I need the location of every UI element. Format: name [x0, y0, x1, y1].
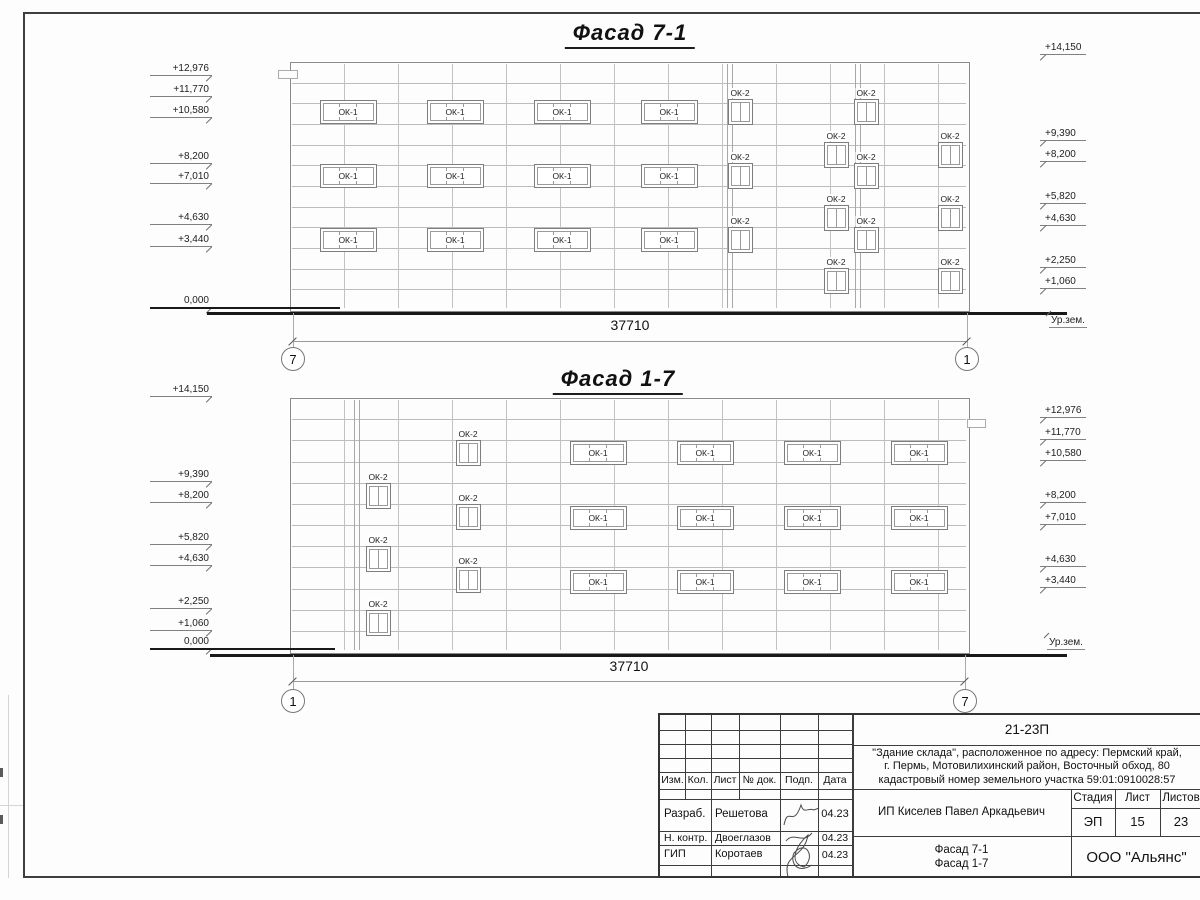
- tb-role-ncontrol: Н. контр.: [660, 831, 711, 845]
- axis-leader-line: [293, 655, 294, 689]
- window-type-label: ОК-1: [801, 577, 822, 587]
- window-ok2: ОК-2: [366, 483, 391, 509]
- tb-date-gip: 04.23: [818, 845, 852, 865]
- window-type-label: ОК-1: [694, 513, 715, 523]
- panel-joint-line: [292, 504, 966, 505]
- signature-strokes: [778, 795, 822, 878]
- window-pane: [379, 487, 387, 505]
- window-ok1: ОК-1: [891, 570, 948, 594]
- elevation-value: +5,820: [178, 532, 209, 543]
- tb-date-developer: 04.23: [818, 799, 852, 831]
- panel-joint-line: [292, 525, 966, 526]
- tb-subject-line2: Фасад 1-7: [935, 858, 989, 872]
- window-ok2: ОК-2: [456, 504, 481, 530]
- window-type-label: ОК-1: [694, 448, 715, 458]
- elevation-mark: +14,150: [150, 383, 212, 397]
- column-grid-line: [506, 400, 507, 650]
- stair-tower-line: [354, 400, 360, 650]
- window-pane: [607, 510, 623, 526]
- column-grid-line: [560, 400, 561, 650]
- window-sash: [369, 486, 388, 506]
- elevation-mark: +8,200: [150, 489, 212, 503]
- panel-joint-line: [292, 419, 966, 420]
- window-type-label: ОК-1: [908, 577, 929, 587]
- dimension-line: [293, 681, 965, 682]
- window-pane: [370, 550, 379, 568]
- elevation-mark: +7,010: [1040, 511, 1086, 525]
- panel-joint-line: [292, 546, 966, 547]
- axis-bubble: 7: [953, 689, 977, 713]
- window-pane: [460, 508, 469, 526]
- window-sash: [459, 507, 478, 527]
- elevation-tick: [206, 608, 212, 614]
- ground-line: [150, 648, 335, 650]
- tb-col-izm: Изм.: [660, 772, 685, 789]
- building-outline: [290, 398, 970, 654]
- window-pane: [821, 510, 837, 526]
- tb-doc-number: 21-23П: [852, 715, 1200, 745]
- column-grid-line: [668, 400, 669, 650]
- tb-name-ncontrol: Двоеглазов: [711, 831, 780, 845]
- window-type-label: ОК-2: [367, 599, 388, 609]
- window-type-label: ОК-2: [457, 493, 478, 503]
- window-type-label: ОК-2: [367, 472, 388, 482]
- elevation-value: +14,150: [173, 384, 209, 395]
- axis-leader-line: [965, 655, 966, 689]
- window-ok1: ОК-1: [677, 506, 734, 530]
- tb-col-podp: Подп.: [780, 772, 818, 789]
- elevation-tick: [1040, 460, 1046, 466]
- dimension-label: 37710: [606, 658, 653, 674]
- elevation-value: +7,010: [1045, 512, 1076, 523]
- window-sash: [459, 443, 478, 463]
- elevation-mark: +8,200: [1040, 489, 1086, 503]
- tb-sheets-value: 23: [1160, 808, 1200, 836]
- elevation-tick: [1040, 439, 1046, 445]
- elevation-value: +10,580: [1045, 448, 1081, 459]
- window-pane: [607, 574, 623, 590]
- panel-joint-line: [292, 631, 966, 632]
- window-pane: [379, 550, 387, 568]
- window-type-label: ОК-1: [908, 513, 929, 523]
- window-pane: [370, 487, 379, 505]
- title-block-line: [660, 758, 852, 759]
- window-ok1: ОК-1: [570, 506, 627, 530]
- elevation-mark: +9,390: [150, 468, 212, 482]
- elevation-value: +1,060: [178, 618, 209, 629]
- tb-sheets-label: Листов: [1160, 789, 1200, 808]
- tb-name-developer: Решетова: [711, 799, 780, 831]
- title-block-line: [660, 730, 852, 731]
- tb-col-list: Лист: [711, 772, 739, 789]
- drawing-sheet: Фасад 7-1 Фасад 1-7 ОК-1ОК-1ОК-1ОК-1ОК-1…: [0, 0, 1200, 900]
- elevation-mark: 0,000: [150, 635, 212, 649]
- window-pane: [714, 510, 730, 526]
- tb-date-ncontrol: 04.23: [818, 831, 852, 845]
- window-ok1: ОК-1: [570, 570, 627, 594]
- window-sash: [459, 570, 478, 590]
- window-ok2: ОК-2: [366, 546, 391, 572]
- column-grid-line: [452, 400, 453, 650]
- window-type-label: ОК-1: [587, 577, 608, 587]
- elevation-value: +8,200: [178, 490, 209, 501]
- window-type-label: ОК-2: [457, 429, 478, 439]
- tb-role-gip: ГИП: [660, 845, 711, 865]
- window-type-label: ОК-1: [908, 448, 929, 458]
- window-pane: [460, 571, 469, 589]
- elevation-value: +9,390: [178, 469, 209, 480]
- ground-line: [210, 654, 1067, 657]
- title-block-line: [660, 865, 852, 866]
- tb-role-developer: Разраб.: [660, 799, 711, 831]
- window-pane: [469, 508, 477, 526]
- window-pane: [469, 444, 477, 462]
- elevation-tick: [206, 502, 212, 508]
- elevation-tick: [206, 481, 212, 487]
- window-type-label: ОК-1: [694, 577, 715, 587]
- tb-client: ИП Киселев Павел Аркадьевич: [852, 789, 1071, 836]
- tb-description-line3: кадастровый номер земельного участка 59:…: [879, 774, 1176, 787]
- elevation-tick: [1040, 417, 1046, 423]
- window-pane: [460, 444, 469, 462]
- window-ok1: ОК-1: [784, 506, 841, 530]
- tb-subject-line1: Фасад 7-1: [935, 844, 989, 858]
- column-grid-line: [884, 400, 885, 650]
- tb-description-line2: г. Пермь, Мотовилихинский район, Восточн…: [884, 760, 1170, 773]
- elevation-value: +3,440: [1045, 575, 1076, 586]
- window-pane: [821, 445, 837, 461]
- window-sash: [369, 613, 388, 633]
- panel-joint-line: [292, 610, 966, 611]
- tb-name-gip: Коротаев: [711, 845, 780, 865]
- window-ok1: ОК-1: [784, 441, 841, 465]
- panel-joint-line: [292, 589, 966, 590]
- tb-description: "Здание склада", расположенное по адресу…: [852, 745, 1200, 789]
- panel-joint-line: [292, 567, 966, 568]
- column-grid-line: [398, 400, 399, 650]
- window-ok2: ОК-2: [366, 610, 391, 636]
- elevation-mark: +1,060: [150, 617, 212, 631]
- window-pane: [607, 445, 623, 461]
- elevation-value: 0,000: [184, 636, 209, 647]
- elevation-mark: +10,580: [1040, 447, 1086, 461]
- window-pane: [379, 614, 387, 632]
- elevation-mark: +4,630: [150, 552, 212, 566]
- window-pane: [370, 614, 379, 632]
- title-block: Изм. Кол. Лист № док. Подп. Дата Разраб.…: [658, 713, 1200, 878]
- window-type-label: ОК-1: [801, 513, 822, 523]
- window-ok1: ОК-1: [891, 506, 948, 530]
- window-type-label: ОК-1: [587, 513, 608, 523]
- column-grid-line: [344, 400, 345, 650]
- window-pane: [714, 445, 730, 461]
- window-ok2: ОК-2: [456, 440, 481, 466]
- elevation-tick: [1040, 502, 1046, 508]
- tb-company: ООО "Альянс": [1071, 836, 1200, 878]
- window-ok2: ОК-2: [456, 567, 481, 593]
- elevation-value: +12,976: [1045, 405, 1081, 416]
- panel-joint-line: [292, 440, 966, 441]
- axis-bubble: 1: [281, 689, 305, 713]
- tb-sheet-value: 15: [1115, 808, 1160, 836]
- tb-stage-value: ЭП: [1071, 808, 1115, 836]
- elevation-mark: +2,250: [150, 595, 212, 609]
- tb-sheet-label: Лист: [1115, 789, 1160, 808]
- window-type-label: ОК-2: [367, 535, 388, 545]
- elevation-mark: +11,770: [1040, 426, 1086, 440]
- window-ok1: ОК-1: [784, 570, 841, 594]
- window-sash: [369, 549, 388, 569]
- window-ok1: ОК-1: [677, 570, 734, 594]
- window-pane: [469, 571, 477, 589]
- elevation-mark: +4,630: [1040, 553, 1086, 567]
- window-ok1: ОК-1: [677, 441, 734, 465]
- panel-joint-line: [292, 462, 966, 463]
- tb-description-line1: "Здание склада", расположенное по адресу…: [872, 747, 1182, 760]
- tb-col-kol: Кол.: [685, 772, 711, 789]
- elevation-value: +4,630: [1045, 554, 1076, 565]
- elevation-mark: +3,440: [1040, 574, 1086, 588]
- elevation-value: +4,630: [178, 553, 209, 564]
- elevation-value: +11,770: [1045, 427, 1081, 438]
- tb-col-data: Дата: [818, 772, 852, 789]
- tb-subject: Фасад 7-1 Фасад 1-7: [852, 836, 1071, 878]
- column-grid-line: [776, 400, 777, 650]
- elevation-value: +8,200: [1045, 490, 1076, 501]
- elevation-tick: [206, 565, 212, 571]
- parapet-detail: [967, 419, 986, 428]
- window-type-label: ОК-1: [801, 448, 822, 458]
- elevation-tick: [206, 396, 212, 402]
- elevation-tick: [1040, 524, 1046, 530]
- elevation-mark: +5,820: [150, 531, 212, 545]
- window-type-label: ОК-2: [457, 556, 478, 566]
- window-ok1: ОК-1: [570, 441, 627, 465]
- elevation-tick: [1040, 587, 1046, 593]
- ground-level-label: Ур.зем.: [1047, 637, 1085, 650]
- window-pane: [714, 574, 730, 590]
- elevation-tick: [206, 544, 212, 550]
- elevation-value: +2,250: [178, 596, 209, 607]
- elevation-tick: [1040, 566, 1046, 572]
- window-type-label: ОК-1: [587, 448, 608, 458]
- window-pane: [928, 574, 944, 590]
- tb-col-ndok: № док.: [739, 772, 780, 789]
- window-pane: [928, 510, 944, 526]
- panel-joint-line: [292, 483, 966, 484]
- title-block-line: [660, 744, 852, 745]
- window-pane: [928, 445, 944, 461]
- window-ok1: ОК-1: [891, 441, 948, 465]
- elevation-mark: +12,976: [1040, 404, 1086, 418]
- window-pane: [821, 574, 837, 590]
- tb-stage-label: Стадия: [1071, 789, 1115, 808]
